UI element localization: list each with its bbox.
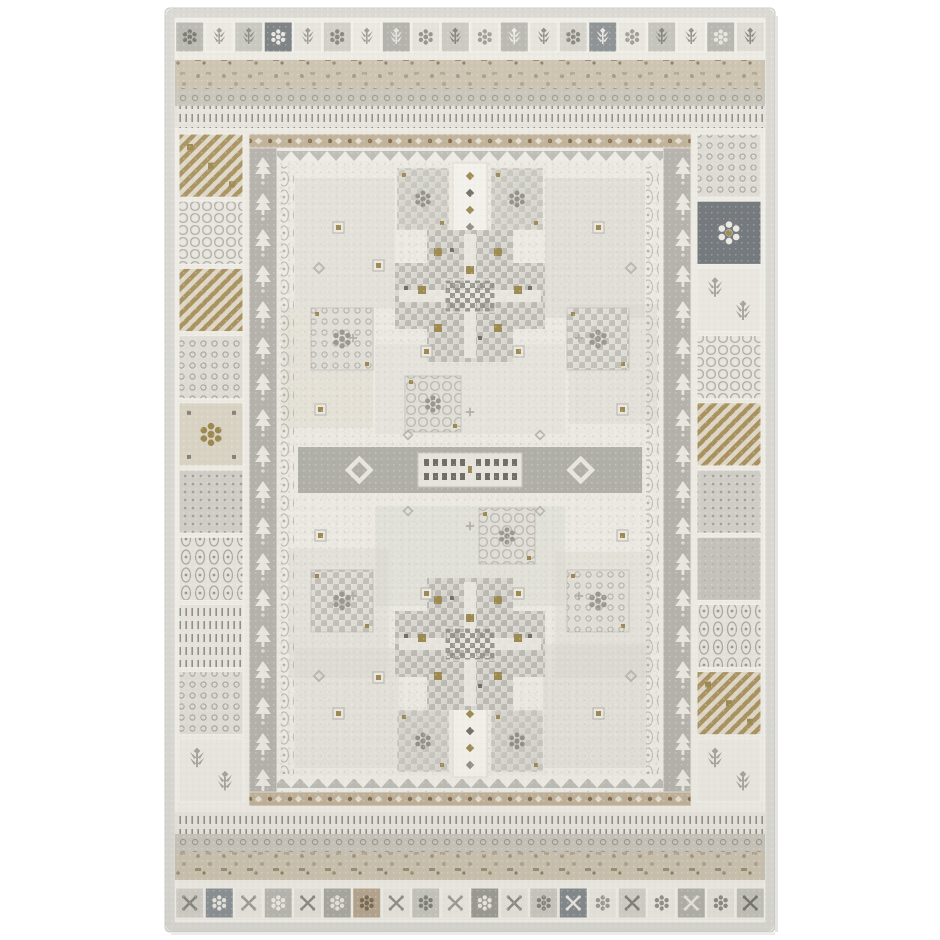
rug-image [0, 0, 940, 940]
rug-product-photo [0, 0, 940, 940]
lighting-vignette [165, 8, 775, 932]
rug-edge-shadow-bottom [171, 932, 775, 935]
rug-body [165, 8, 775, 932]
rug-edge-shadow-right [775, 16, 778, 932]
rug [165, 8, 778, 935]
